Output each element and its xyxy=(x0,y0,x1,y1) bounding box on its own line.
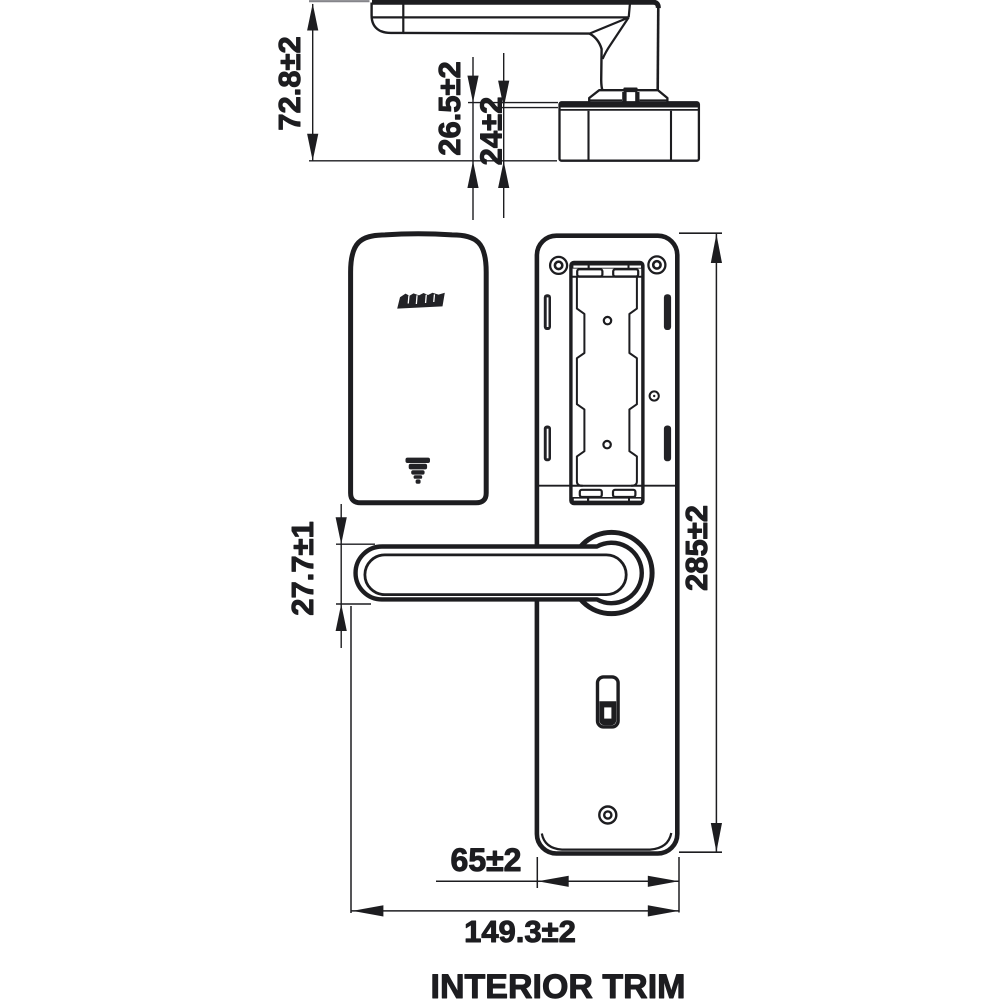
svg-text:27.7±1: 27.7±1 xyxy=(285,521,320,616)
svg-text:24±2: 24±2 xyxy=(474,97,509,166)
svg-text:INTERIOR TRIM: INTERIOR TRIM xyxy=(431,968,686,1000)
svg-text:285±2: 285±2 xyxy=(679,505,714,591)
svg-text:65±2: 65±2 xyxy=(451,842,522,878)
svg-text:149.3±2: 149.3±2 xyxy=(464,914,576,949)
svg-text:26.5±2: 26.5±2 xyxy=(432,61,467,156)
svg-text:72.8±2: 72.8±2 xyxy=(272,36,307,131)
